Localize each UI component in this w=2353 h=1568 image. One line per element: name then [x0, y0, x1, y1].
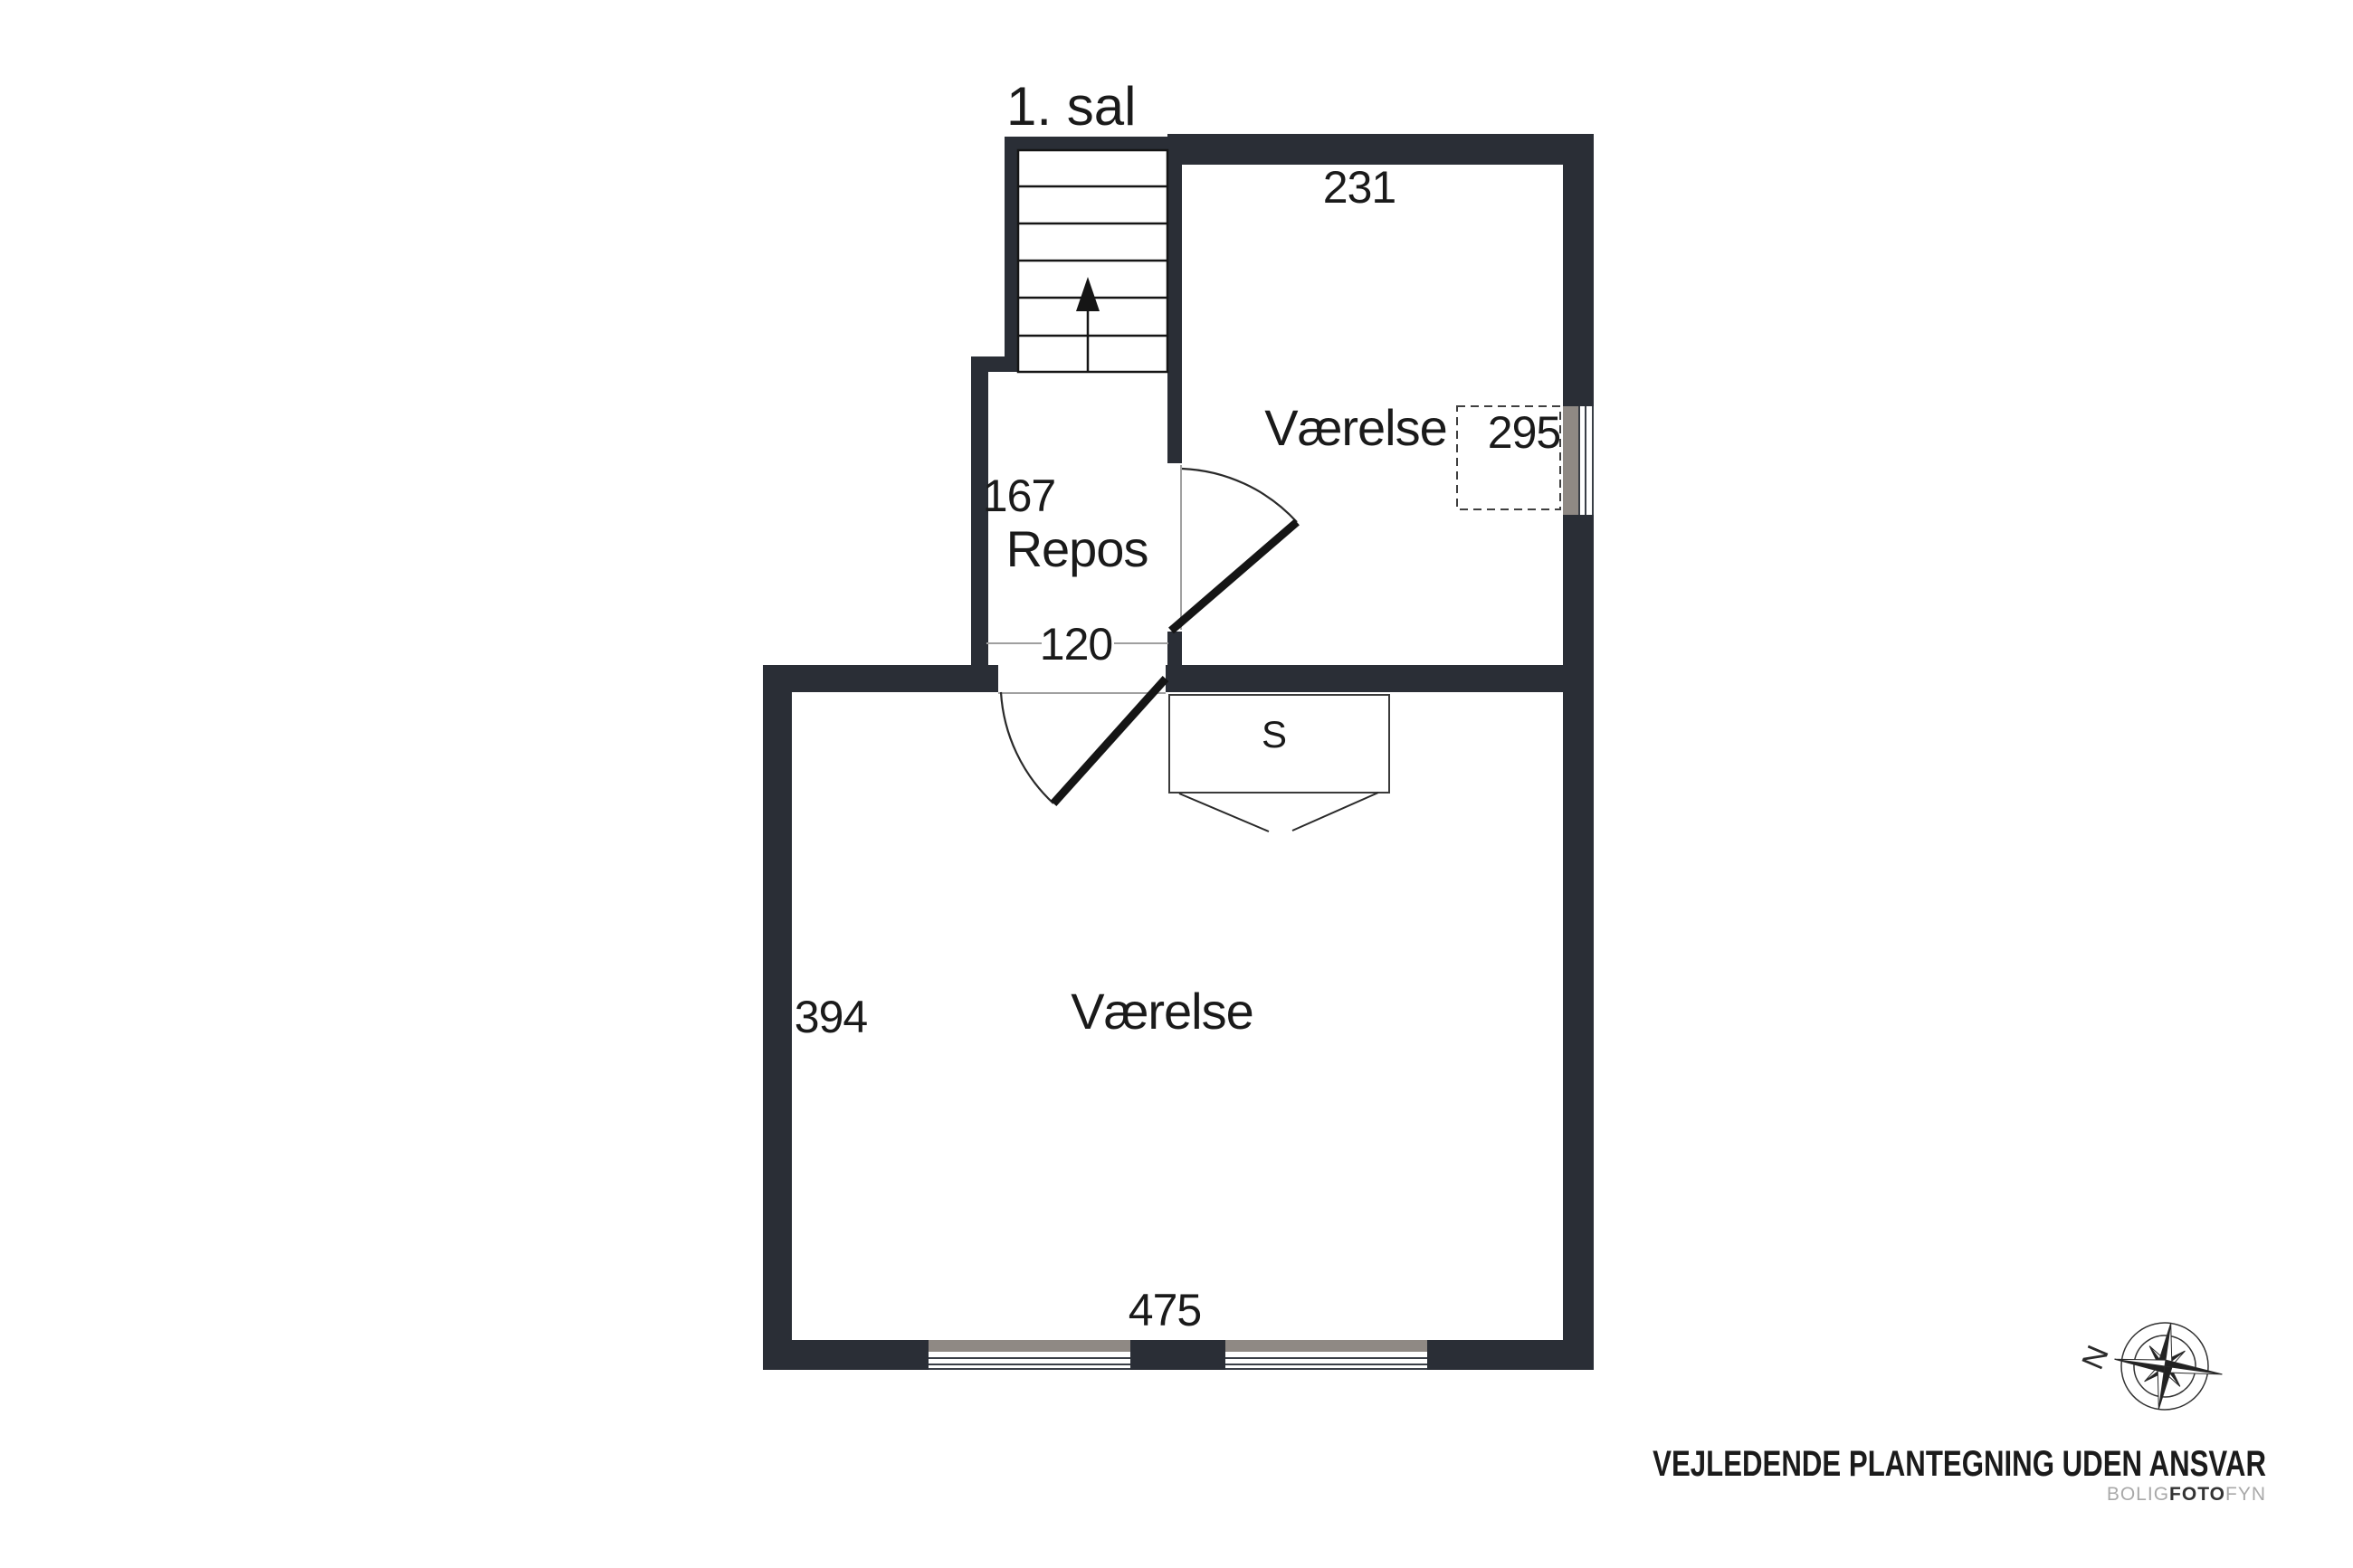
- window-right: [1563, 406, 1594, 515]
- room-top-label: Værelse: [1264, 403, 1447, 453]
- wall-stair-right: [1167, 149, 1182, 463]
- door-leaf-upper: [1171, 522, 1297, 631]
- window-bottom-left: [929, 1340, 1130, 1370]
- dim-room-top-depth: 295: [1488, 410, 1560, 455]
- brand-prefix: BOLIG: [2107, 1484, 2169, 1505]
- window-sill: [1225, 1340, 1427, 1352]
- door-leaf-lower: [1053, 679, 1166, 803]
- wall-stair-left: [1005, 137, 1018, 372]
- wall-top-thick: [1167, 134, 1594, 165]
- staircase: [1018, 150, 1167, 372]
- room-landing-label: Repos: [1006, 524, 1148, 575]
- brand-middle: FOTO: [2169, 1484, 2225, 1505]
- window-sill: [929, 1340, 1130, 1352]
- window-glass: [1225, 1352, 1427, 1370]
- footer-brand-logo: BOLIGFOTOFYN: [2107, 1484, 2266, 1506]
- dim-landing-depth: 167: [983, 473, 1055, 518]
- window-glass: [929, 1352, 1130, 1370]
- wardrobe-label: S: [1262, 716, 1287, 754]
- window-bottom-right: [1225, 1340, 1427, 1370]
- door-arc-upper: [1182, 469, 1297, 522]
- floor-title: 1. sal: [1006, 80, 1136, 134]
- compass-rose-icon: N: [2071, 1311, 2228, 1418]
- window-sill: [1563, 406, 1578, 515]
- wardrobe-chevron-left: [1179, 794, 1269, 832]
- wall-bottom: [763, 1340, 1594, 1370]
- dim-room-bottom-depth: 394: [795, 994, 867, 1040]
- wall-repos-left: [971, 356, 988, 692]
- compass-main-points: [2109, 1316, 2228, 1418]
- wall-door-stub: [1167, 632, 1182, 665]
- dim-room-top-width: 231: [1323, 165, 1396, 210]
- wall-mid-right: [1166, 665, 1594, 692]
- door-arc-lower: [1001, 692, 1053, 803]
- floorplan-page: { "title": "1. sal", "floor_plan": { "ro…: [0, 0, 2353, 1568]
- wall-top-thin: [1005, 137, 1172, 149]
- wall-right: [1563, 134, 1594, 1370]
- compass-north-label: N: [2075, 1341, 2116, 1374]
- dim-room-bottom-width: 475: [1129, 1288, 1201, 1333]
- footer-disclaimer: VEJLEDENDE PLANTEGNING UDEN ANSVAR: [1653, 1444, 2266, 1485]
- dim-landing-opening: 120: [1040, 622, 1112, 667]
- brand-suffix: FYN: [2225, 1484, 2266, 1505]
- room-bottom-label: Værelse: [1071, 986, 1253, 1037]
- wall-lower-left: [763, 665, 792, 1370]
- wall-mid-left: [763, 665, 998, 692]
- wardrobe-chevron-right: [1292, 793, 1378, 831]
